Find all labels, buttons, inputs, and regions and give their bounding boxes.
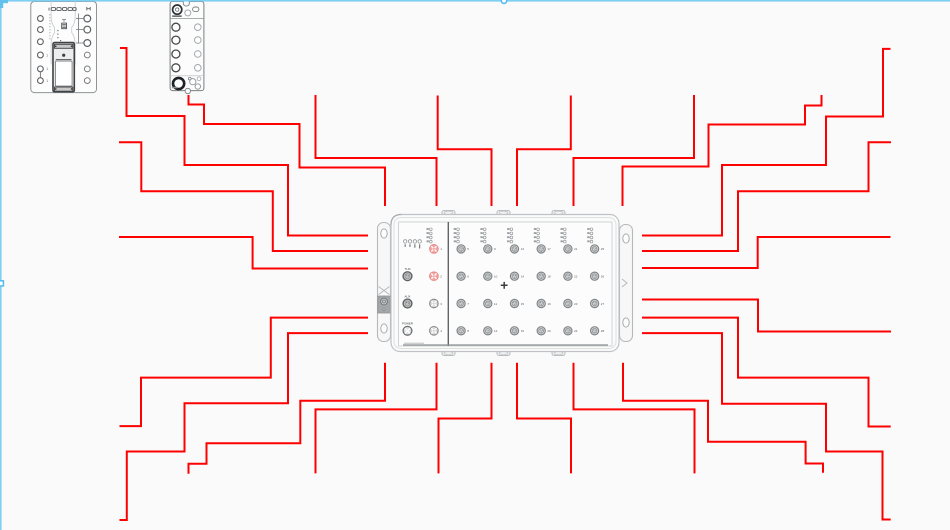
svg-text:14: 14 (521, 275, 525, 279)
svg-text:21: 21 (574, 247, 578, 251)
svg-text:11: 11 (494, 302, 497, 306)
svg-text:1: 1 (46, 53, 48, 57)
svg-text:20: 20 (547, 329, 551, 333)
svg-text:POWER: POWER (402, 322, 413, 326)
svg-text:22: 22 (574, 275, 578, 279)
svg-text:16: 16 (521, 329, 525, 333)
svg-text:1: 1 (46, 79, 48, 83)
svg-text:26: 26 (601, 275, 605, 279)
svg-text:15: 15 (521, 302, 525, 306)
svg-text:12: 12 (494, 329, 498, 333)
svg-text:23: 23 (574, 302, 578, 306)
svg-text:13: 13 (521, 247, 525, 251)
svg-text:TLM: TLM (405, 267, 411, 271)
svg-text:25: 25 (601, 247, 605, 251)
svg-text:28: 28 (601, 329, 605, 333)
svg-text:17: 17 (547, 247, 551, 251)
svg-text:10: 10 (494, 275, 498, 279)
svg-text:24: 24 (574, 329, 578, 333)
svg-text:19: 19 (547, 302, 551, 306)
svg-text:1: 1 (46, 67, 48, 71)
svg-text:27: 27 (601, 302, 605, 306)
svg-text:AUX: AUX (405, 294, 411, 298)
svg-text:18: 18 (547, 275, 551, 279)
